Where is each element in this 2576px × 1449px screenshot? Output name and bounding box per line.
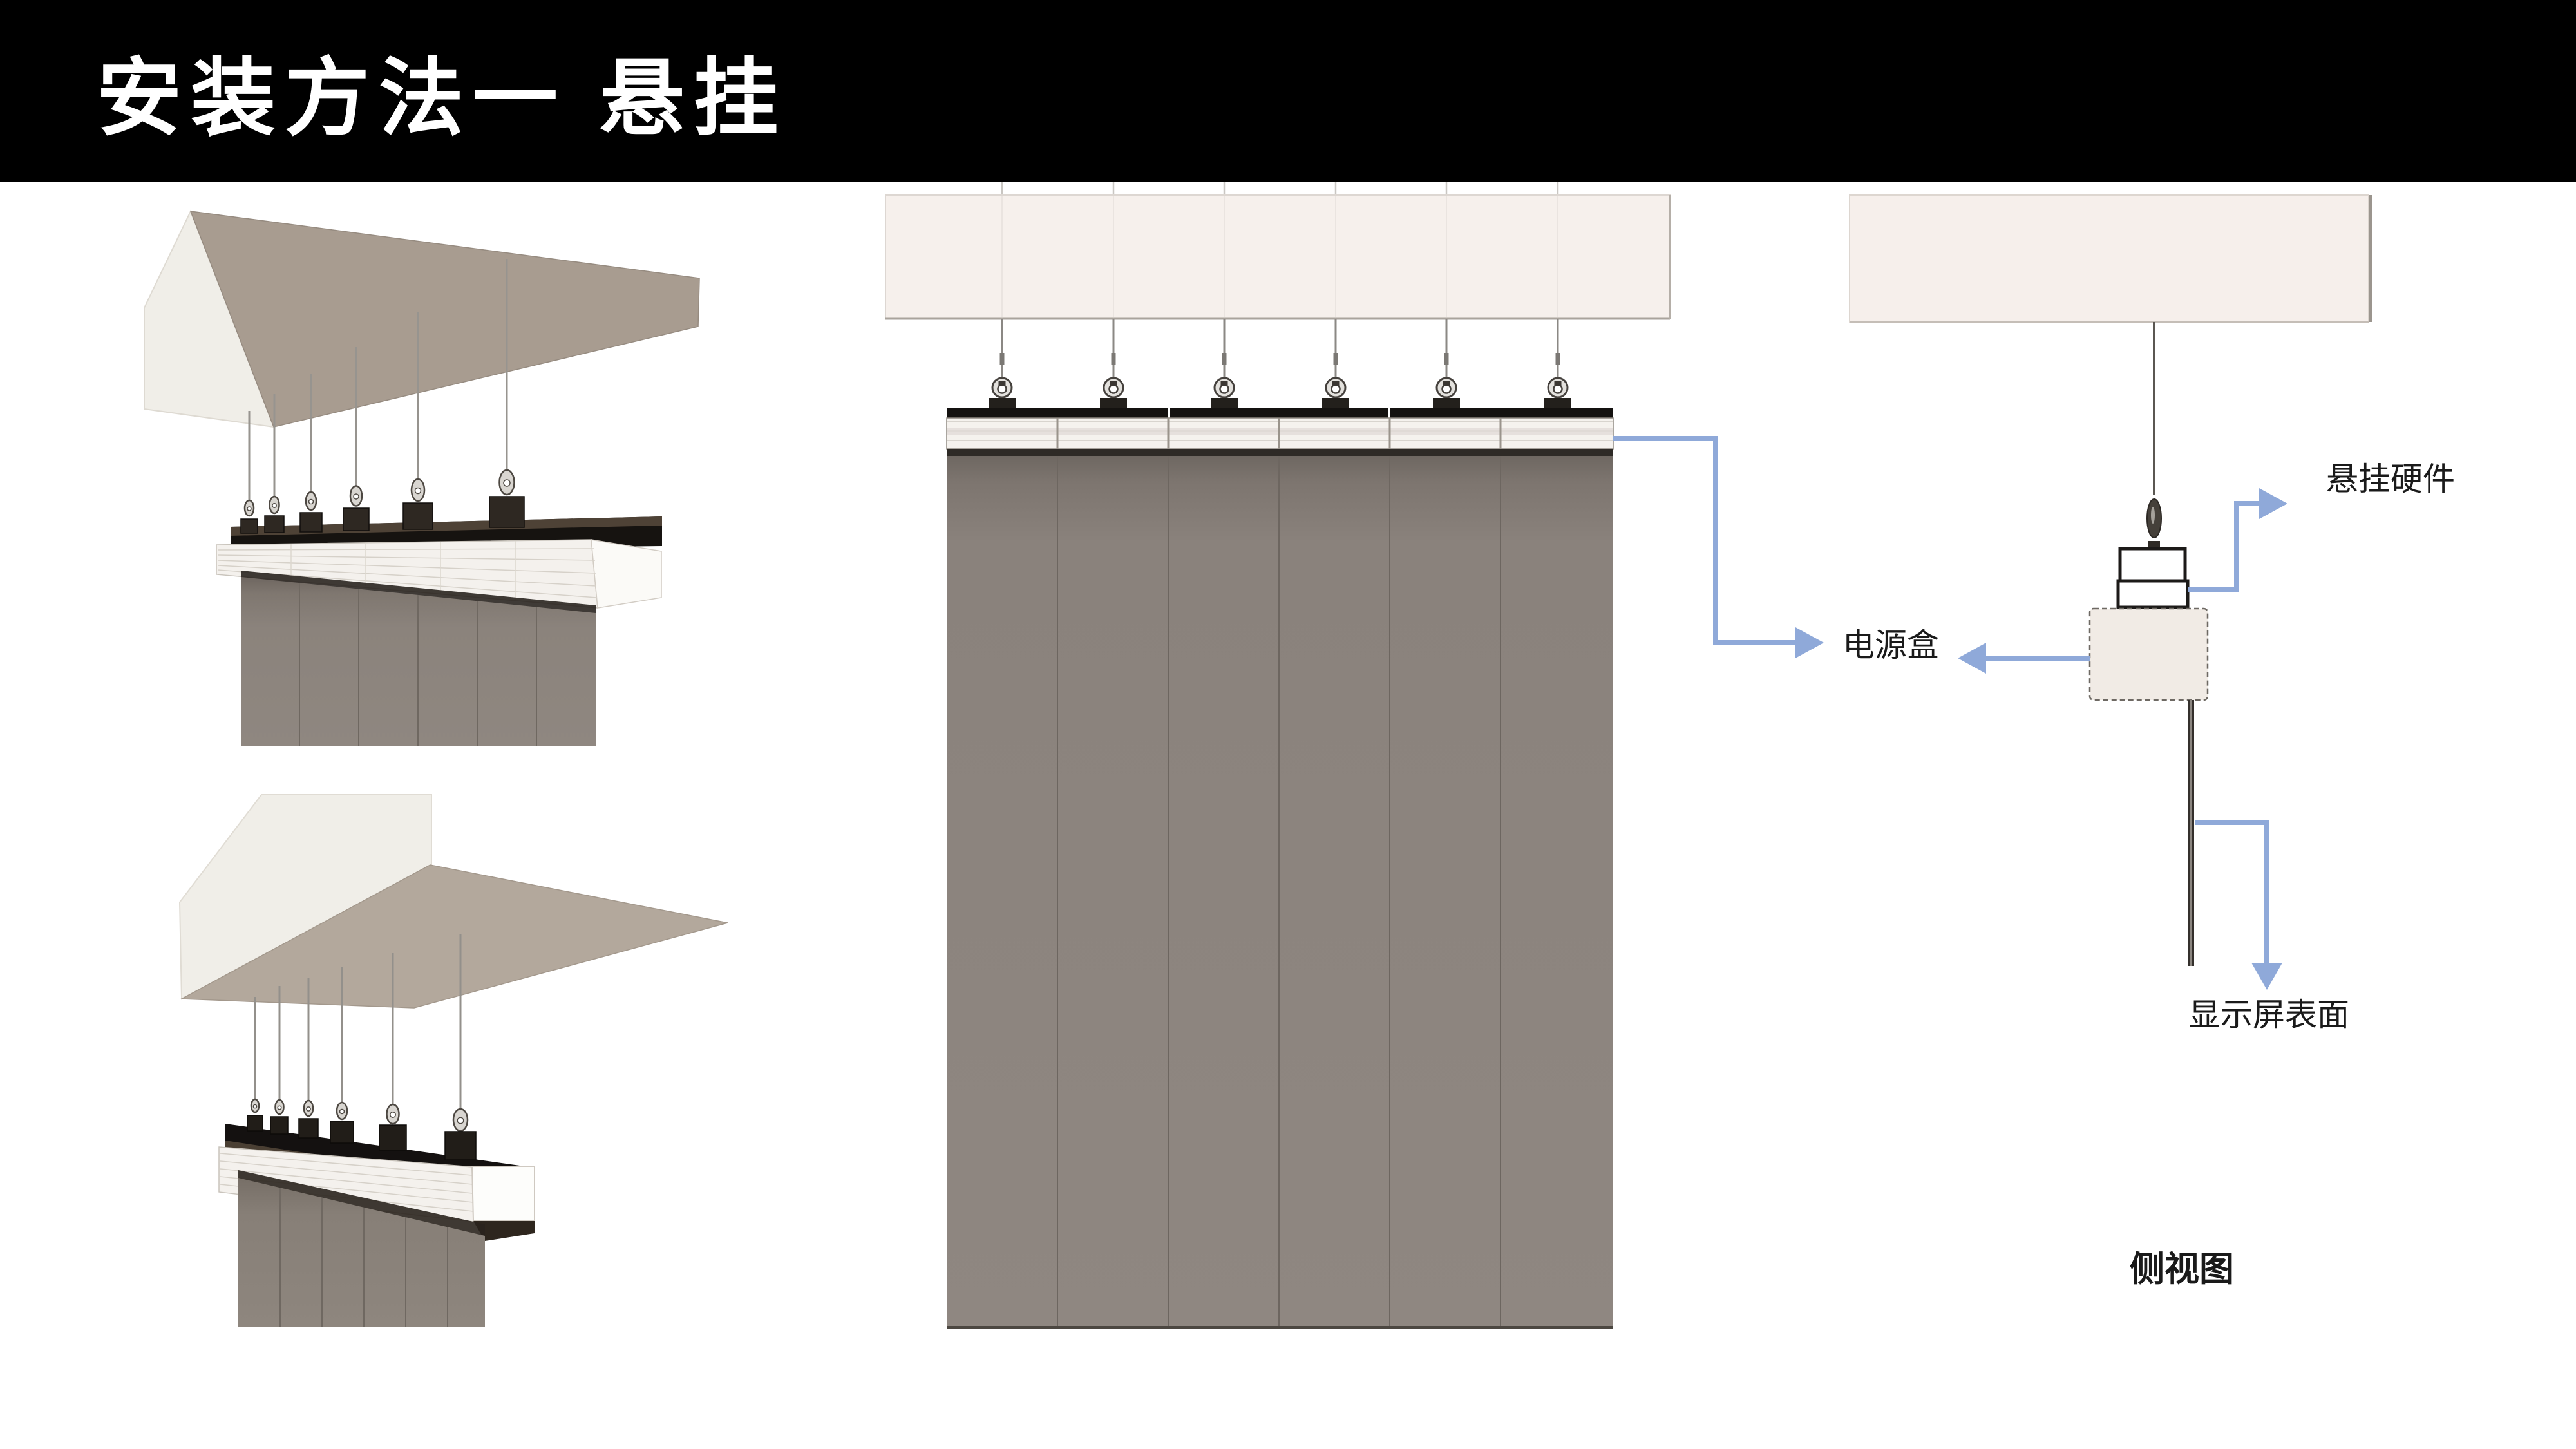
arrow-screen-surface bbox=[2195, 822, 2282, 990]
label-hanging-hardware: 悬挂硬件 bbox=[2326, 461, 2455, 498]
arrow-power-box-left bbox=[1613, 439, 1824, 658]
label-side-view: 侧视图 bbox=[2130, 1249, 2234, 1289]
label-power-box: 电源盒 bbox=[1824, 627, 1958, 665]
arrow-power-box-right bbox=[1958, 643, 2090, 674]
arrow-hanging-hardware bbox=[2188, 488, 2287, 589]
annotation-arrows bbox=[0, 0, 2576, 1449]
label-screen-surface: 显示屏表面 bbox=[2188, 997, 2349, 1034]
slide-canvas: { "header": { "title": "安装方法一 悬挂" }, "la… bbox=[0, 0, 2576, 1449]
